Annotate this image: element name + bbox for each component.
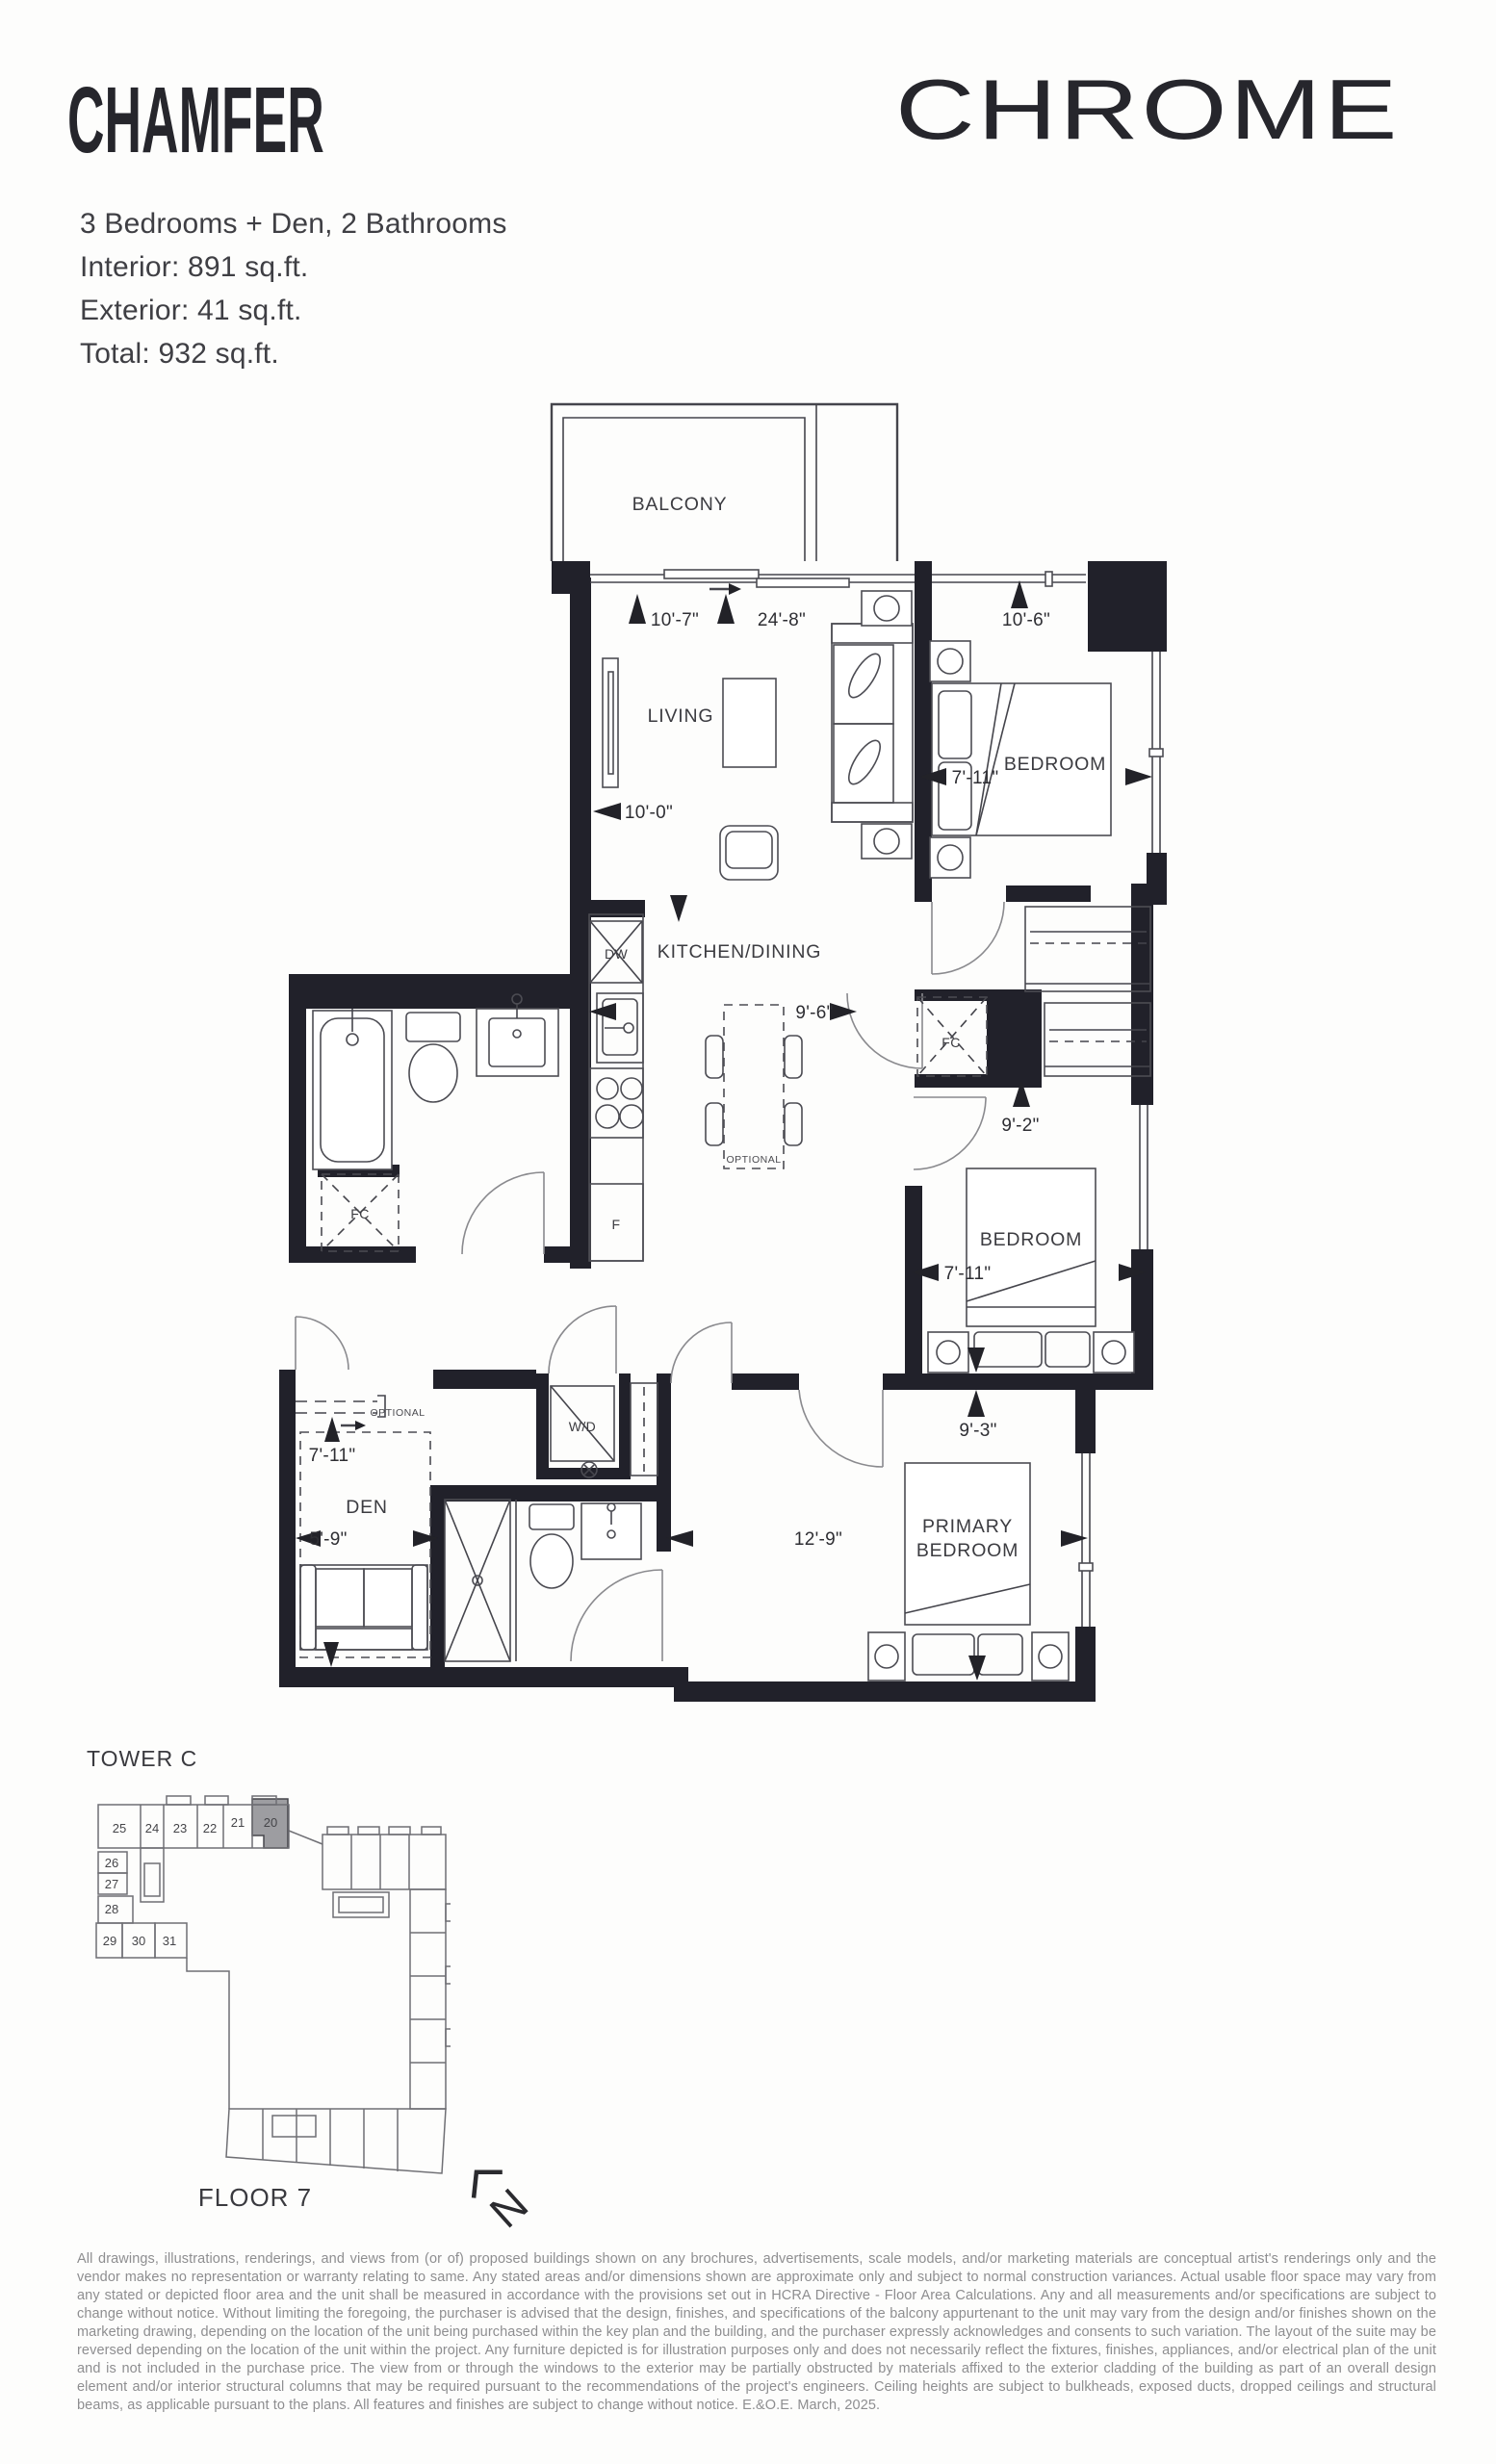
keyplan-unit-25: 25 — [113, 1821, 126, 1835]
suite-specs: 3 Bedrooms + Den, 2 Bathrooms Interior: … — [80, 202, 507, 375]
label-washer-dryer: W/D — [569, 1419, 596, 1434]
room-label-kitchen: KITCHEN/DINING — [658, 941, 821, 962]
balcony: BALCONY — [552, 404, 897, 561]
room-label-bedroom1: BEDROOM — [1004, 754, 1106, 775]
legal-disclaimer: All drawings, illustrations, renderings,… — [77, 2250, 1436, 2415]
spec-exterior: Exterior: 41 sq.ft. — [80, 289, 507, 332]
dim-primary: 12'-9" — [794, 1529, 842, 1550]
label-optional-dining: OPTIONAL — [726, 1154, 781, 1166]
dim-living-top: 10'-7" — [651, 610, 699, 630]
dim-living-left: 10'-0" — [625, 803, 673, 823]
den: DEN OPTIONAL — [296, 1396, 430, 1657]
primary-bedroom: PRIMARY BEDROOM — [868, 1463, 1069, 1681]
spec-type: 3 Bedrooms + Den, 2 Bathrooms — [80, 202, 507, 245]
keyplan-unit-20: 20 — [264, 1815, 277, 1830]
keyplan-unit-22: 22 — [203, 1821, 217, 1835]
dim-suite-length: 24'-8" — [758, 610, 806, 630]
dim-kitchen: 9'-6" — [795, 1003, 833, 1023]
room-label-den: DEN — [346, 1497, 388, 1518]
room-label-balcony: BALCONY — [632, 494, 728, 515]
north-arrow-icon: N — [460, 2154, 547, 2250]
bathroom1: FC — [313, 994, 558, 1251]
north-letter: N — [480, 2179, 537, 2238]
dim-den-top: 7'-11" — [309, 1446, 356, 1466]
dim-closet: 9'-2" — [1001, 1116, 1039, 1136]
keyplan-unit-26: 26 — [105, 1856, 118, 1870]
living-room: LIVING — [603, 591, 913, 880]
room-label-living: LIVING — [648, 706, 714, 727]
keyplan-unit-23: 23 — [173, 1821, 187, 1835]
keyplan-unit-31: 31 — [163, 1934, 176, 1948]
dim-den: 5'-9" — [309, 1529, 347, 1550]
keyplan-unit-30: 30 — [132, 1934, 145, 1948]
label-fc-hall: FC — [941, 1035, 960, 1050]
dim-bedroom2-bottom: 9'-3" — [959, 1421, 996, 1441]
doors — [296, 902, 1004, 1661]
label-fc-bath: FC — [350, 1206, 369, 1221]
keyplan-unit-29: 29 — [103, 1934, 116, 1948]
keyplan-unit-27: 27 — [105, 1877, 118, 1891]
keyplan-tower-label: TOWER C — [87, 1746, 197, 1772]
keyplan: 25 24 23 22 21 20 26 27 28 29 30 31 — [85, 1788, 451, 2212]
room-label-bedroom2: BEDROOM — [980, 1229, 1082, 1250]
keyplan-unit-24: 24 — [145, 1821, 159, 1835]
dim-bedroom1-top: 10'-6" — [1002, 610, 1050, 630]
keyplan-unit-28: 28 — [105, 1902, 118, 1916]
kitchen: DW F KITCHEN/DINING OPTIONAL — [589, 914, 821, 1261]
bedroom1: BEDROOM — [930, 641, 1111, 878]
page-title: CHAMFER — [67, 73, 324, 167]
label-optional-den: OPTIONAL — [370, 1407, 425, 1419]
keyplan-unit-numbers: 25 24 23 22 21 20 26 27 28 29 30 31 — [103, 1815, 277, 1948]
room-label-primary-2: BEDROOM — [916, 1540, 1019, 1561]
keyplan-building-outline — [96, 1796, 451, 2173]
room-label-primary-1: PRIMARY — [922, 1516, 1013, 1537]
keyplan-floor-label: FLOOR 7 — [149, 2183, 361, 2213]
dim-bedroom2-side: 7'-11" — [944, 1264, 992, 1284]
spec-total: Total: 932 sq.ft. — [80, 332, 507, 375]
label-dishwasher: DW — [605, 946, 629, 962]
dim-bedroom1-side: 7'-11" — [952, 768, 999, 788]
keyplan-unit-21: 21 — [231, 1815, 245, 1830]
floorplan-sheet: { "header": { "title": "CHAMFER", "brand… — [0, 0, 1496, 2464]
label-fridge: F — [612, 1217, 621, 1232]
brand-logo: CHROME — [895, 67, 1400, 152]
floor-plan: BALCONY — [271, 393, 1181, 1726]
spec-interior: Interior: 891 sq.ft. — [80, 245, 507, 289]
